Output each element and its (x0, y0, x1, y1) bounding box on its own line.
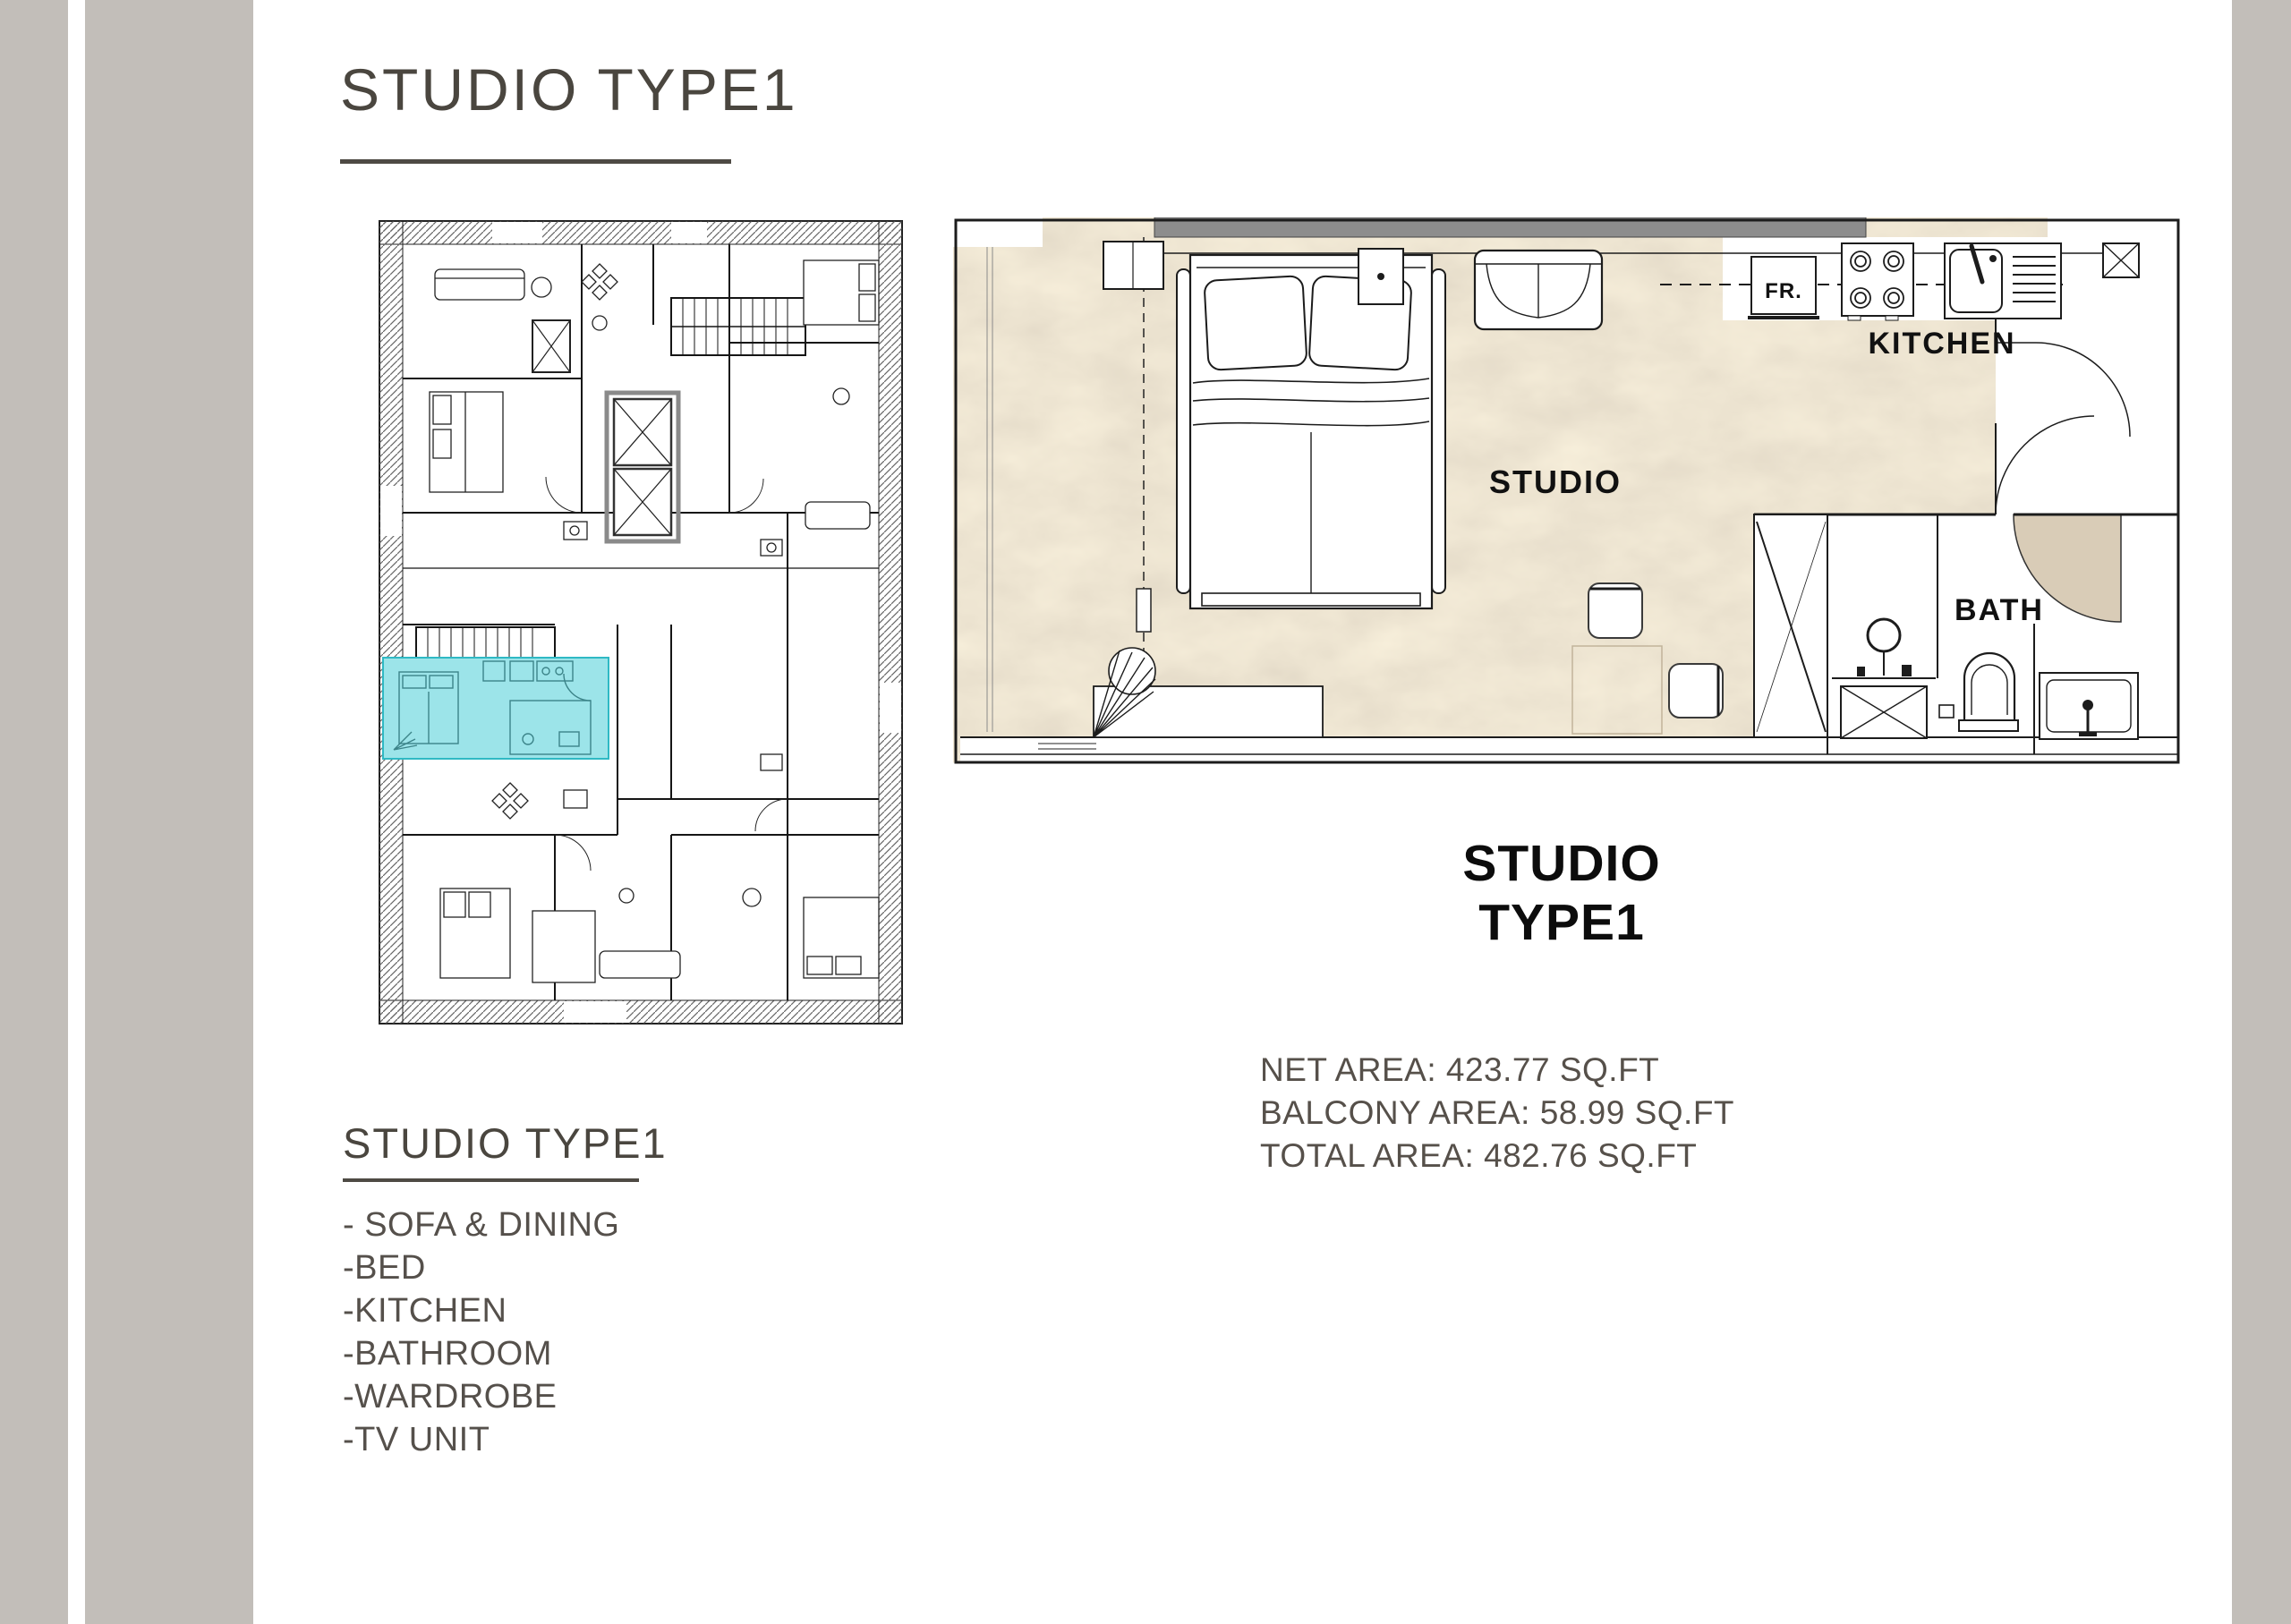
features-list: - SOFA & DINING -BED -KITCHEN -BATHROOM … (343, 1203, 619, 1461)
right-gray-strip (2232, 0, 2291, 1624)
page-title: STUDIO TYPE1 (340, 55, 798, 123)
feature-item: -BATHROOM (343, 1332, 619, 1375)
sofa (1475, 251, 1602, 329)
fridge-label: FR. (1765, 279, 1802, 303)
feature-item: - SOFA & DINING (343, 1203, 619, 1246)
unit-type-label: STUDIO TYPE1 (1427, 834, 1696, 952)
nightstand-left (1103, 242, 1163, 289)
studio-label: STUDIO (1489, 463, 1622, 500)
bed (1177, 255, 1445, 608)
net-area: NET AREA: 423.77 SQ.FT (1260, 1049, 1734, 1092)
unit-type-line2: TYPE1 (1427, 893, 1696, 952)
feature-item: -TV UNIT (343, 1418, 619, 1461)
feature-item: -KITCHEN (343, 1289, 619, 1332)
features-heading: STUDIO TYPE1 (343, 1118, 668, 1168)
total-area: TOTAL AREA: 482.76 SQ.FT (1260, 1135, 1734, 1178)
feature-item: -WARDROBE (343, 1375, 619, 1418)
unit-type-line1: STUDIO (1427, 834, 1696, 893)
building-floor-plan-overview (376, 217, 906, 1027)
unit-highlight-overlay (383, 658, 609, 759)
area-summary: NET AREA: 423.77 SQ.FT BALCONY AREA: 58.… (1260, 1049, 1734, 1178)
studio-detail-plan: FR. KITCHEN STUDIO BATH (953, 217, 2181, 765)
feature-item: -BED (343, 1246, 619, 1289)
nightstand-right (1358, 249, 1403, 304)
page-title-underline (340, 159, 731, 164)
stove (1842, 243, 1913, 316)
left-gray-strip-inner (85, 0, 253, 1624)
left-gray-strip-outer (0, 0, 68, 1624)
balcony-area: BALCONY AREA: 58.99 SQ.FT (1260, 1092, 1734, 1135)
kitchen-label: KITCHEN (1868, 327, 2015, 361)
features-underline (343, 1178, 639, 1182)
bath-label: BATH (1955, 593, 2044, 627)
